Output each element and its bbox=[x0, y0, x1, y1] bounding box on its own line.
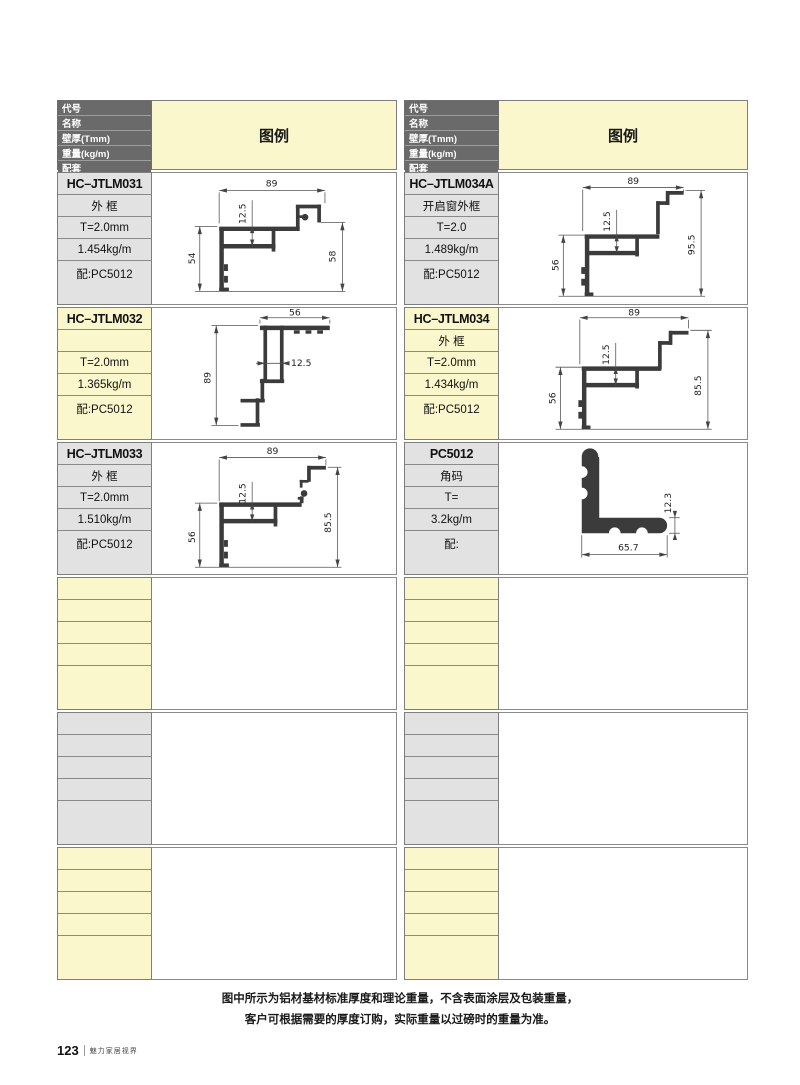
empty-cell bbox=[405, 870, 498, 892]
profile-weight: 3.2kg/m bbox=[405, 509, 498, 531]
profile-name: 外 框 bbox=[405, 330, 498, 352]
profile-spec-labels: HC–JTLM031 外 框 T=2.0mm 1.454kg/m 配:PC501… bbox=[57, 172, 152, 305]
profile-code: HC–JTLM034 bbox=[405, 308, 498, 330]
empty-spec-labels bbox=[57, 847, 152, 980]
empty-row bbox=[404, 847, 748, 980]
empty-cell bbox=[58, 936, 151, 979]
profile-weight: 1.454kg/m bbox=[58, 239, 151, 261]
cross-section-drawing: 89 12.5 bbox=[152, 443, 396, 574]
empty-cell bbox=[58, 666, 151, 709]
header-thickness-label: 壁厚(Tmm) bbox=[58, 131, 151, 146]
dim-width: 89 bbox=[267, 446, 279, 457]
empty-row bbox=[57, 712, 397, 845]
profile-weight: 1.365kg/m bbox=[58, 374, 151, 396]
profile-code: HC–JTLM034A bbox=[405, 173, 498, 195]
empty-row bbox=[57, 847, 397, 980]
profile-table: 代号 名称 壁厚(Tmm) 重量(kg/m) 配套 图例 HC–JTLM031 … bbox=[57, 100, 748, 982]
dim-inner: 12.5 bbox=[602, 211, 613, 232]
empty-cell bbox=[58, 892, 151, 914]
empty-cell bbox=[405, 644, 498, 666]
table-column-left: 代号 名称 壁厚(Tmm) 重量(kg/m) 配套 图例 HC–JTLM031 … bbox=[57, 100, 397, 982]
empty-drawing-cell bbox=[152, 577, 397, 710]
profile-code: PC5012 bbox=[405, 443, 498, 465]
profile-code: HC–JTLM033 bbox=[58, 443, 151, 465]
empty-cell bbox=[405, 757, 498, 779]
empty-cell bbox=[405, 848, 498, 870]
profile-drawing-pc5012: 12.3 65.7 bbox=[499, 442, 748, 575]
footer-note: 图中所示为铝材基材标准厚度和理论重量，不含表面涂层及包装重量， 客户可根据需要的… bbox=[0, 989, 800, 1031]
profile-drawing-jtlm031: 89 12.5 54 bbox=[152, 172, 397, 305]
table-header-right: 代号 名称 壁厚(Tmm) 重量(kg/m) 配套 图例 bbox=[404, 100, 748, 170]
dim-left: 56 bbox=[548, 392, 559, 404]
profile-name: 外 框 bbox=[58, 465, 151, 487]
empty-row bbox=[57, 577, 397, 710]
profile-drawing-jtlm032: 56 12.5 89 bbox=[152, 307, 397, 440]
empty-spec-labels bbox=[404, 577, 499, 710]
empty-cell bbox=[58, 644, 151, 666]
table-header-left: 代号 名称 壁厚(Tmm) 重量(kg/m) 配套 图例 bbox=[57, 100, 397, 170]
profile-weight: 1.434kg/m bbox=[405, 374, 498, 396]
header-field-labels: 代号 名称 壁厚(Tmm) 重量(kg/m) 配套 bbox=[404, 100, 499, 170]
empty-spec-labels bbox=[57, 712, 152, 845]
empty-cell bbox=[405, 892, 498, 914]
profile-row-pc5012: PC5012 角码 T= 3.2kg/m 配: 12.3 bbox=[404, 442, 748, 575]
empty-cell bbox=[58, 801, 151, 844]
dim-width: 56 bbox=[289, 308, 301, 318]
catalog-page: 代号 名称 壁厚(Tmm) 重量(kg/m) 配套 图例 HC–JTLM031 … bbox=[0, 0, 800, 1085]
footer-brand-text: 魅力家居视界 bbox=[90, 1046, 138, 1056]
dim-left: 56 bbox=[187, 531, 198, 543]
header-code-label: 代号 bbox=[58, 101, 151, 116]
empty-spec-labels bbox=[404, 847, 499, 980]
empty-cell bbox=[58, 757, 151, 779]
profile-drawing-jtlm034: 89 12.5 56 bbox=[499, 307, 748, 440]
profile-match: 配:PC5012 bbox=[405, 396, 498, 439]
profile-thickness: T=2.0mm bbox=[405, 352, 498, 374]
dim-left: 89 bbox=[202, 372, 213, 384]
dim-right: 85.5 bbox=[693, 375, 704, 396]
empty-row bbox=[404, 577, 748, 710]
empty-drawing-cell bbox=[499, 577, 748, 710]
profile-thickness: T=2.0mm bbox=[58, 352, 151, 374]
dim-inner: 12.5 bbox=[601, 344, 612, 365]
profile-thickness: T= bbox=[405, 487, 498, 509]
profile-match: 配:PC5012 bbox=[58, 396, 151, 439]
profile-spec-labels: PC5012 角码 T= 3.2kg/m 配: bbox=[404, 442, 499, 575]
legend-header-cell: 图例 bbox=[499, 100, 748, 170]
legend-header-cell: 图例 bbox=[152, 100, 397, 170]
dim-width: 89 bbox=[266, 179, 278, 190]
dim-left: 56 bbox=[550, 259, 561, 271]
empty-cell bbox=[405, 600, 498, 622]
page-footer: 123 魅力家居视界 bbox=[57, 1043, 138, 1058]
empty-drawing-cell bbox=[499, 712, 748, 845]
profile-row-jtlm033: HC–JTLM033 外 框 T=2.0mm 1.510kg/m 配:PC501… bbox=[57, 442, 397, 575]
empty-drawing-cell bbox=[152, 847, 397, 980]
profile-name: 开启窗外框 bbox=[405, 195, 498, 217]
empty-cell bbox=[58, 622, 151, 644]
profile-thickness: T=2.0mm bbox=[58, 487, 151, 509]
profile-match: 配:PC5012 bbox=[58, 531, 151, 574]
profile-row-jtlm034a: HC–JTLM034A 开启窗外框 T=2.0 1.489kg/m 配:PC50… bbox=[404, 172, 748, 305]
profile-row-jtlm031: HC–JTLM031 外 框 T=2.0mm 1.454kg/m 配:PC501… bbox=[57, 172, 397, 305]
header-weight-label: 重量(kg/m) bbox=[58, 146, 151, 161]
dim-inner: 12.5 bbox=[291, 358, 312, 369]
dim-right: 85.5 bbox=[323, 512, 334, 533]
cross-section-drawing: 89 12.5 54 bbox=[152, 173, 396, 304]
empty-cell bbox=[405, 801, 498, 844]
empty-drawing-cell bbox=[499, 847, 748, 980]
empty-cell bbox=[58, 578, 151, 600]
table-column-right: 代号 名称 壁厚(Tmm) 重量(kg/m) 配套 图例 HC–JTLM034A… bbox=[404, 100, 748, 982]
empty-cell bbox=[405, 914, 498, 936]
profile-spec-labels: HC–JTLM033 外 框 T=2.0mm 1.510kg/m 配:PC501… bbox=[57, 442, 152, 575]
profile-spec-labels: HC–JTLM032 T=2.0mm 1.365kg/m 配:PC5012 bbox=[57, 307, 152, 440]
header-thickness-label: 壁厚(Tmm) bbox=[405, 131, 498, 146]
profile-match: 配:PC5012 bbox=[405, 261, 498, 304]
cross-section-drawing: 12.3 65.7 bbox=[499, 443, 747, 574]
empty-cell bbox=[58, 848, 151, 870]
profile-name: 角码 bbox=[405, 465, 498, 487]
cross-section-drawing: 56 12.5 89 bbox=[152, 308, 396, 439]
empty-cell bbox=[405, 936, 498, 979]
empty-cell bbox=[405, 622, 498, 644]
empty-cell bbox=[58, 779, 151, 801]
footer-divider bbox=[84, 1045, 85, 1056]
page-number: 123 bbox=[57, 1043, 79, 1058]
empty-cell bbox=[405, 713, 498, 735]
profile-name bbox=[58, 330, 151, 352]
profile-match: 配: bbox=[405, 531, 498, 574]
dim-left: 54 bbox=[187, 252, 198, 264]
dim-right: 58 bbox=[328, 250, 339, 262]
header-field-labels: 代号 名称 壁厚(Tmm) 重量(kg/m) 配套 bbox=[57, 100, 152, 170]
empty-row bbox=[404, 712, 748, 845]
profile-name: 外 框 bbox=[58, 195, 151, 217]
empty-cell bbox=[405, 578, 498, 600]
profile-spec-labels: HC–JTLM034 外 框 T=2.0mm 1.434kg/m 配:PC501… bbox=[404, 307, 499, 440]
dim-right: 12.3 bbox=[663, 493, 674, 514]
footer-note-line2: 客户可根据需要的厚度订购，实际重量以过磅时的重量为准。 bbox=[0, 1010, 800, 1031]
empty-cell bbox=[58, 870, 151, 892]
dim-inner: 12.5 bbox=[237, 203, 248, 224]
profile-drawing-jtlm033: 89 12.5 bbox=[152, 442, 397, 575]
profile-drawing-jtlm034a: 89 12.5 56 bbox=[499, 172, 748, 305]
empty-cell bbox=[405, 666, 498, 709]
header-weight-label: 重量(kg/m) bbox=[405, 146, 498, 161]
dim-inner: 12.5 bbox=[237, 483, 248, 504]
profile-thickness: T=2.0 bbox=[405, 217, 498, 239]
profile-code: HC–JTLM032 bbox=[58, 308, 151, 330]
empty-spec-labels bbox=[57, 577, 152, 710]
profile-match: 配:PC5012 bbox=[58, 261, 151, 304]
empty-spec-labels bbox=[404, 712, 499, 845]
dim-width: 89 bbox=[628, 308, 640, 318]
profile-spec-labels: HC–JTLM034A 开启窗外框 T=2.0 1.489kg/m 配:PC50… bbox=[404, 172, 499, 305]
header-name-label: 名称 bbox=[58, 116, 151, 131]
empty-cell bbox=[58, 735, 151, 757]
dim-bottom: 65.7 bbox=[618, 543, 639, 554]
profile-row-jtlm032: HC–JTLM032 T=2.0mm 1.365kg/m 配:PC5012 56 bbox=[57, 307, 397, 440]
profile-thickness: T=2.0mm bbox=[58, 217, 151, 239]
profile-weight: 1.510kg/m bbox=[58, 509, 151, 531]
profile-weight: 1.489kg/m bbox=[405, 239, 498, 261]
dim-right: 95.5 bbox=[686, 234, 697, 255]
profile-code: HC–JTLM031 bbox=[58, 173, 151, 195]
empty-cell bbox=[405, 779, 498, 801]
empty-cell bbox=[58, 600, 151, 622]
cross-section-drawing: 89 12.5 56 bbox=[499, 173, 747, 304]
dim-width: 89 bbox=[627, 176, 639, 187]
empty-drawing-cell bbox=[152, 712, 397, 845]
empty-cell bbox=[405, 735, 498, 757]
empty-cell bbox=[58, 914, 151, 936]
footer-note-line1: 图中所示为铝材基材标准厚度和理论重量，不含表面涂层及包装重量， bbox=[0, 989, 800, 1010]
cross-section-drawing: 89 12.5 56 bbox=[499, 308, 747, 439]
empty-cell bbox=[58, 713, 151, 735]
header-code-label: 代号 bbox=[405, 101, 498, 116]
header-name-label: 名称 bbox=[405, 116, 498, 131]
profile-row-jtlm034: HC–JTLM034 外 框 T=2.0mm 1.434kg/m 配:PC501… bbox=[404, 307, 748, 440]
